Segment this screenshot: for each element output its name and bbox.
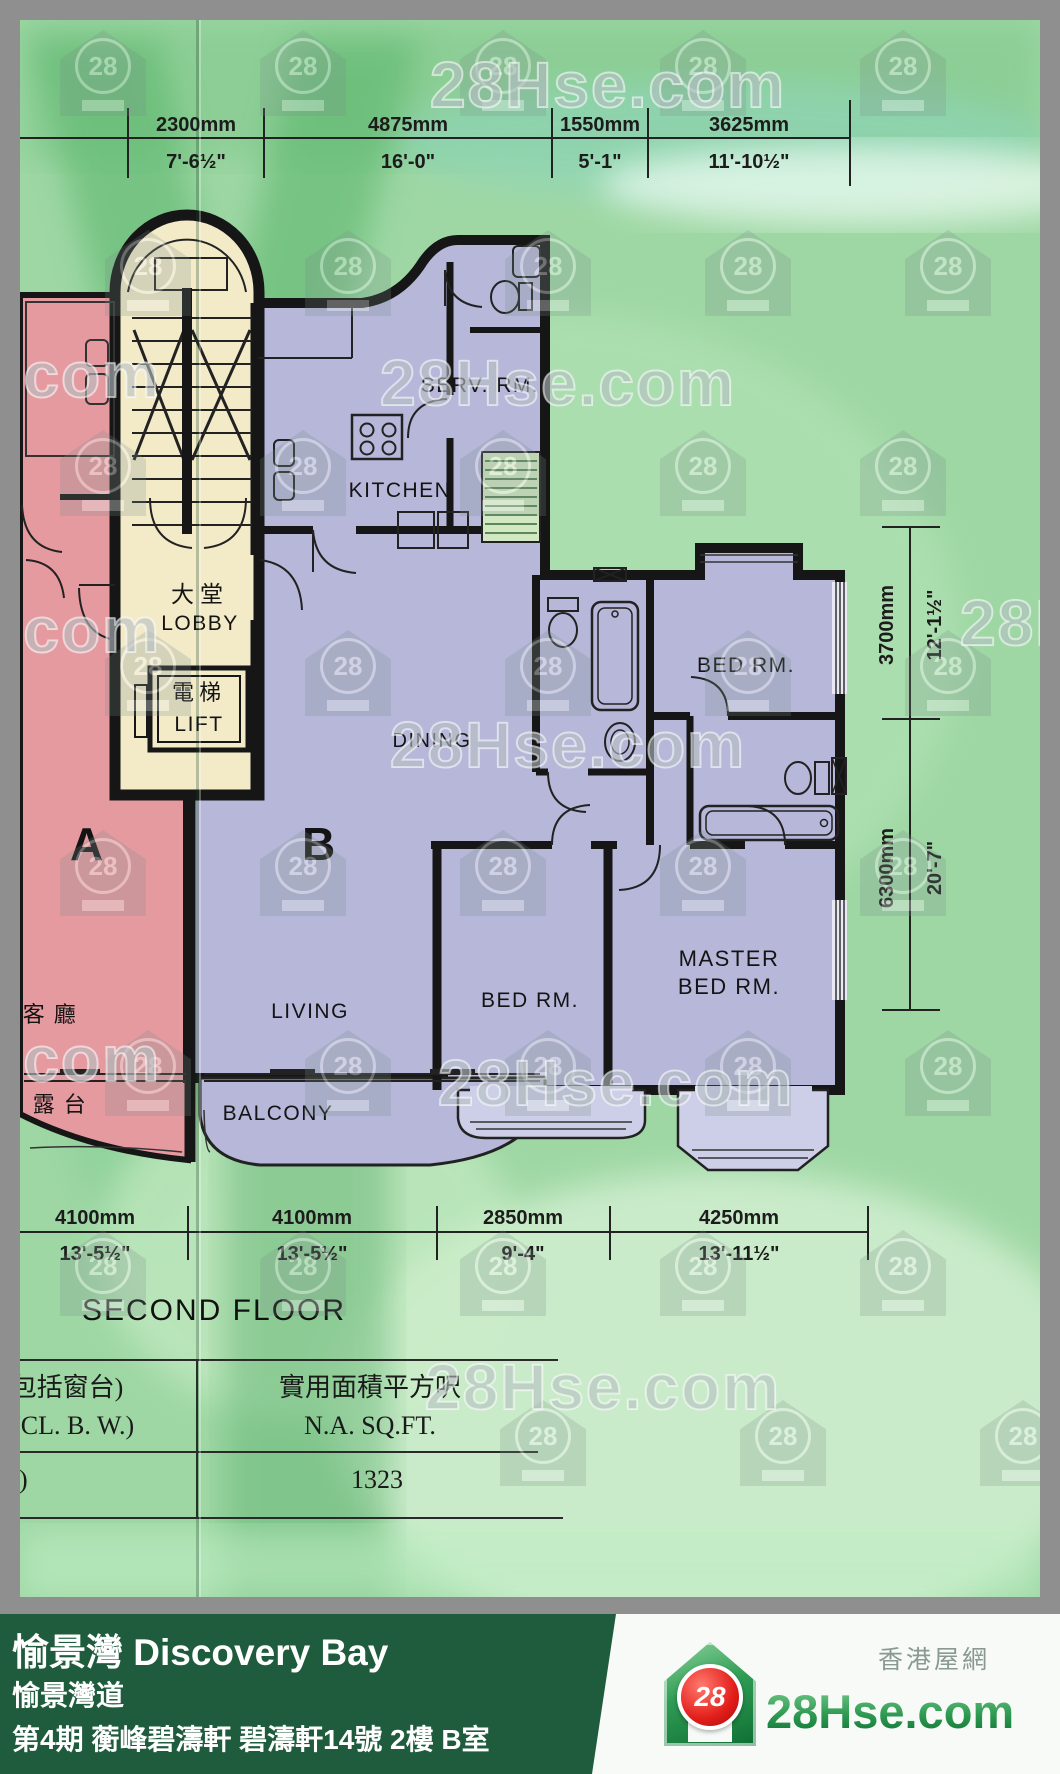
brand-tagline: 香港屋網 [878,1640,990,1676]
estate-detail: 第4期 蘅峰碧濤軒 碧濤軒14號 2樓 B室 [12,1718,490,1758]
footer-banner: 愉景灣 Discovery Bay 愉景灣道 第4期 蘅峰碧濤軒 碧濤軒14號 … [0,1614,1060,1774]
frame-left [0,0,20,1614]
estate-street: 愉景灣道 [12,1674,124,1714]
logo-28-badge: 28 [677,1664,743,1730]
frame-right [1040,0,1060,1614]
brand-logo: 28 [664,1642,756,1746]
frame-bottom [0,1597,1060,1614]
background-texture [20,20,1040,1597]
estate-title: 愉景灣 Discovery Bay [12,1622,388,1676]
brand-name: 28Hse.com [766,1684,1014,1739]
scan-area: 2828282828282828282828282828282828282828… [20,20,1040,1597]
frame-top [0,0,1060,20]
floorplan-listing-image: 2828282828282828282828282828282828282828… [0,0,1060,1774]
paper-crease-highlight [199,20,201,1597]
